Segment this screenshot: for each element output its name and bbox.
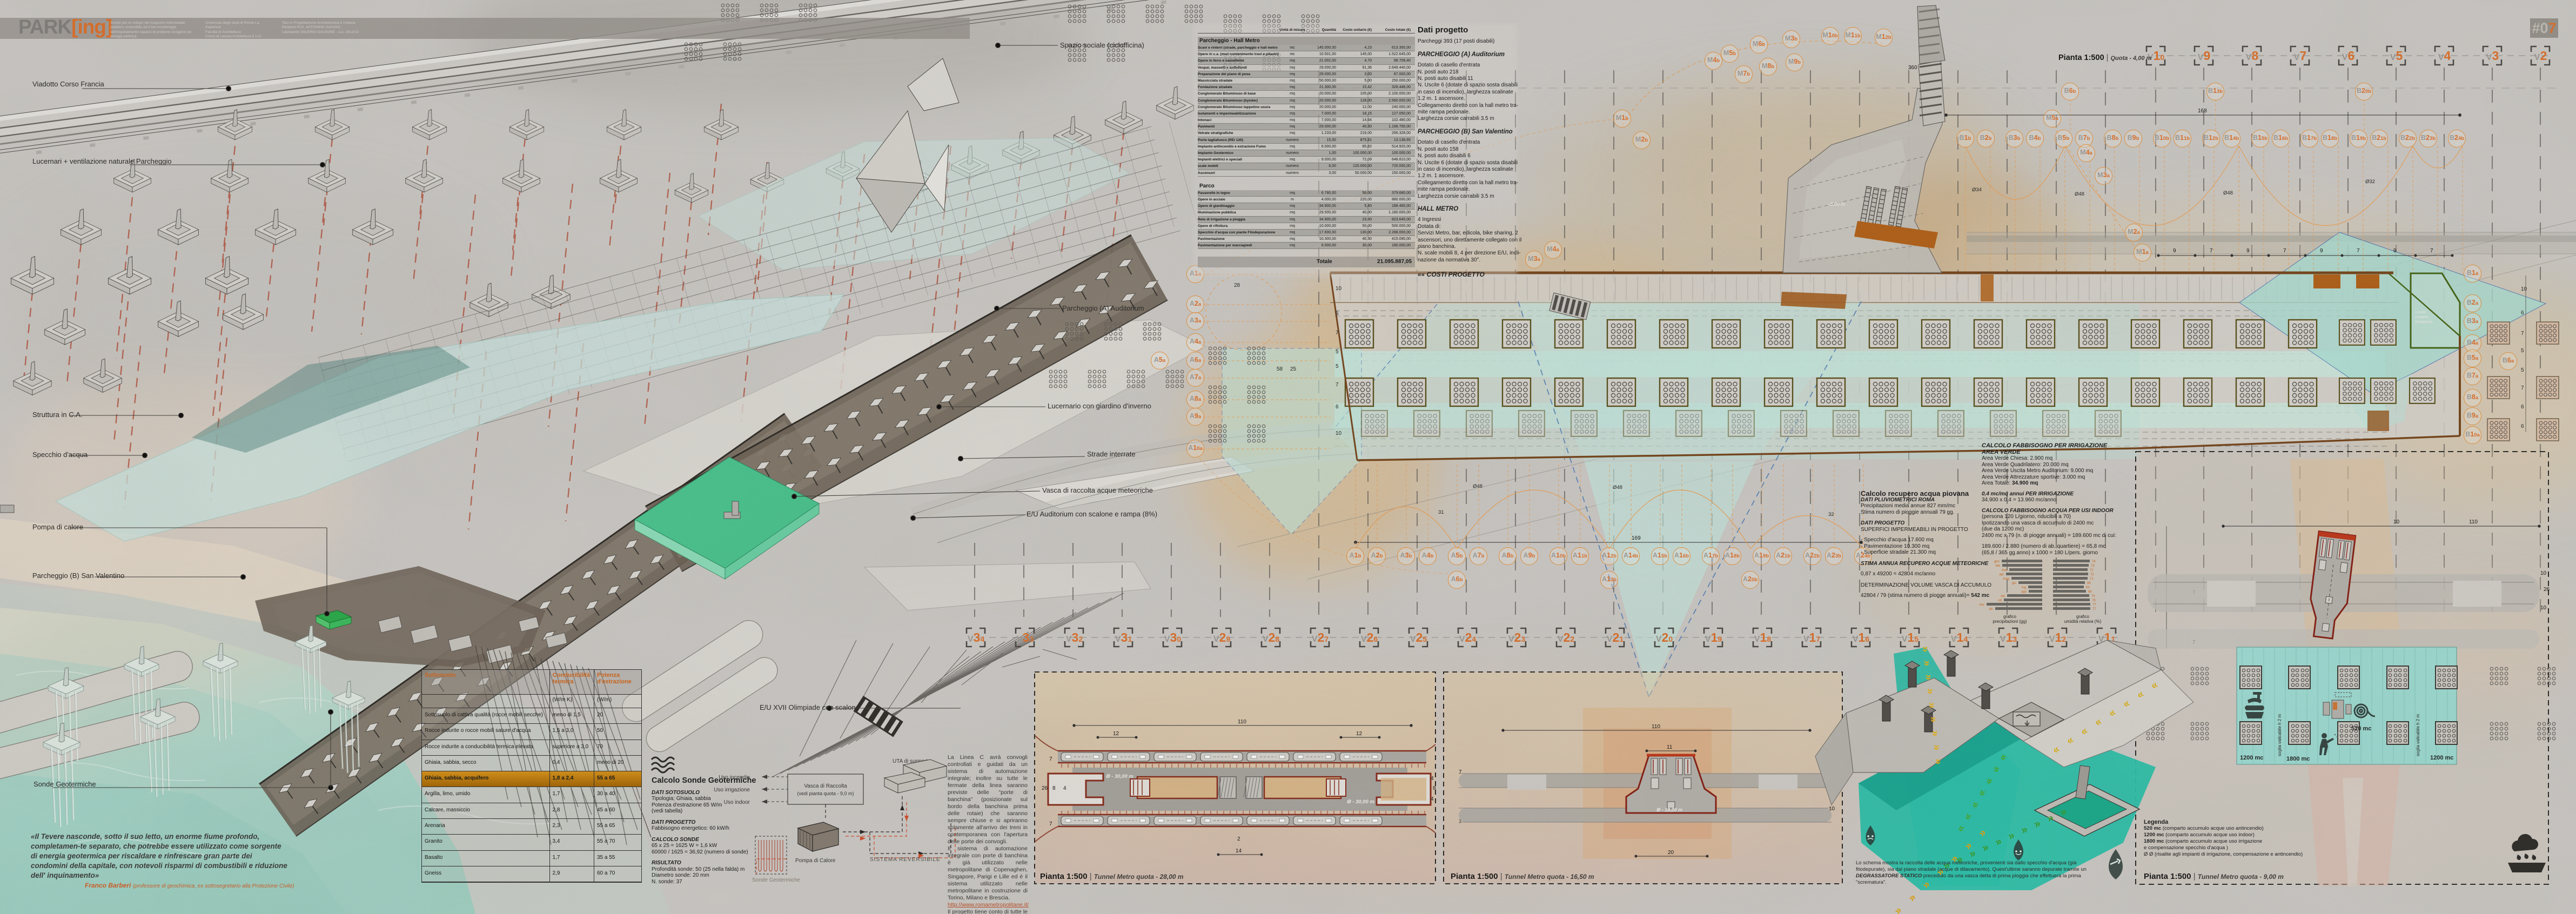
svg-text:Uso indoor: Uso indoor: [724, 799, 750, 805]
svg-text:Vasca di Raccolta: Vasca di Raccolta: [804, 783, 847, 789]
svg-text:apr: apr: [1999, 573, 2004, 576]
svg-text:76: 76: [2092, 599, 2096, 602]
svg-text:74: 74: [2091, 595, 2095, 598]
svg-text:77: 77: [2092, 603, 2096, 607]
svg-text:feb: feb: [1996, 564, 2001, 568]
svg-text:Uso irrigazione: Uso irrigazione: [714, 787, 750, 793]
svg-text:mag: mag: [2003, 577, 2009, 581]
svg-text:73: 73: [2091, 564, 2095, 568]
svg-text:gen: gen: [1994, 560, 2000, 563]
svg-text:nov: nov: [1979, 603, 1984, 607]
svg-text:Uso incendio: Uso incendio: [719, 775, 750, 781]
svg-text:grafico: grafico: [2076, 614, 2090, 619]
svg-text:dic: dic: [1989, 608, 1993, 611]
svg-text:66: 66: [2087, 582, 2091, 585]
svg-text:71: 71: [2090, 569, 2094, 572]
svg-text:Pompa di Calore: Pompa di Calore: [795, 858, 836, 864]
svg-text:grafico: grafico: [2003, 614, 2017, 619]
svg-text:77: 77: [2092, 608, 2096, 611]
svg-text:63: 63: [2086, 586, 2090, 589]
svg-text:76: 76: [2092, 560, 2096, 563]
svg-text:set: set: [2001, 595, 2005, 598]
svg-text:SISTEMA REVERSIBILE: SISTEMA REVERSIBILE: [870, 857, 941, 863]
svg-text:68: 68: [2088, 590, 2092, 594]
svg-text:ago: ago: [2021, 590, 2027, 594]
svg-text:umidità relativa (%): umidità relativa (%): [2064, 619, 2102, 624]
svg-text:precipitazioni (gg): precipitazioni (gg): [1993, 619, 2027, 624]
svg-text:Sonde Geotermiche: Sonde Geotermiche: [752, 877, 800, 883]
svg-text:(vedi pianta quota - 9,0 m): (vedi pianta quota - 9,0 m): [797, 791, 854, 796]
svg-text:71: 71: [2090, 577, 2094, 581]
svg-text:72: 72: [2090, 573, 2094, 576]
svg-text:lug: lug: [2022, 586, 2026, 589]
svg-text:ott: ott: [1998, 599, 2002, 602]
svg-text:mar: mar: [2002, 569, 2007, 572]
svg-text:giu: giu: [2012, 582, 2016, 585]
